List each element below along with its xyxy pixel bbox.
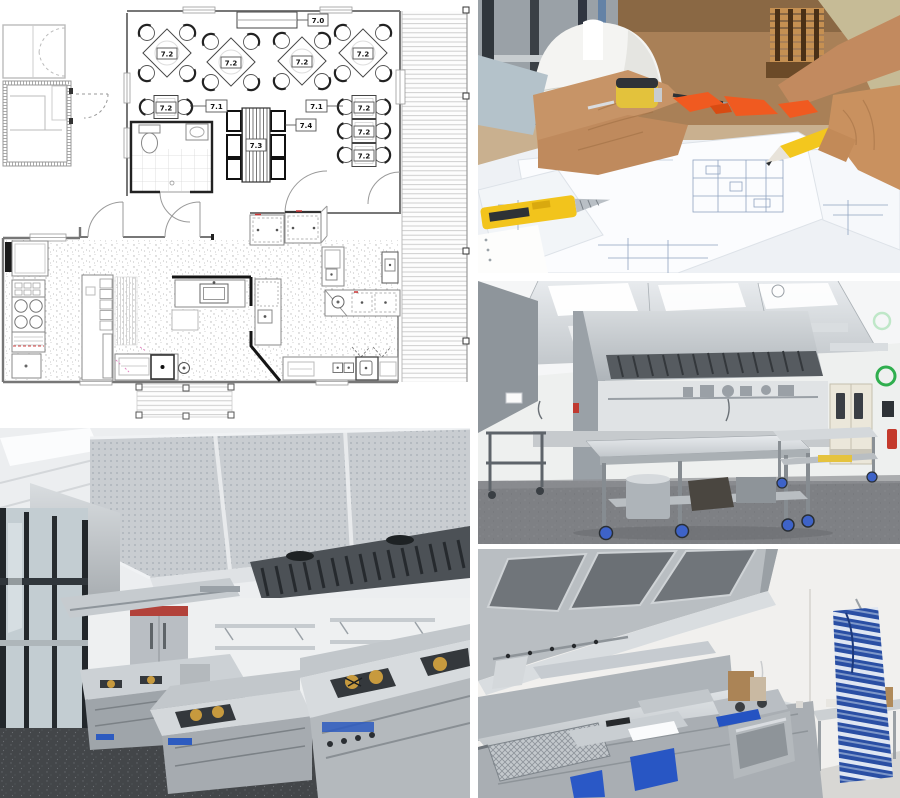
tag-7-2: 7.2: [358, 129, 371, 137]
wall-socket: [796, 701, 803, 708]
tag-7-2: 7.2: [225, 60, 238, 68]
tag-7-2: 7.2: [358, 153, 371, 161]
tag-7-2: 7.2: [296, 59, 309, 67]
storeroom-left: [3, 25, 108, 166]
blueprint-review-photo: [478, 0, 900, 273]
kitchen-fry-line-photo: [478, 549, 900, 798]
tag-7-0: 7.0: [312, 17, 325, 25]
extraction-hood: [583, 311, 823, 381]
photo-collage: 7.0 7.1 7.1 7.4 7.3 7.2 7.2 7.2 7.2 7.2 …: [0, 0, 900, 798]
tag-7-2: 7.2: [161, 51, 174, 59]
floor-plan-drawing: 7.0 7.1 7.1 7.4 7.3 7.2 7.2 7.2 7.2 7.2 …: [0, 0, 470, 426]
tag-7-2: 7.2: [160, 105, 173, 113]
cook-bench-mid: [150, 670, 312, 794]
tag-7-1-right: 7.1: [310, 103, 323, 111]
glass-partition: [0, 508, 88, 753]
kitchen-gas-line-photo: [0, 428, 470, 798]
porch-steps: [136, 384, 234, 419]
kitchen-island-photo: [478, 281, 900, 544]
tag-7-1-left: 7.1: [210, 103, 223, 111]
cream-door: [830, 384, 872, 464]
tag-7-4: 7.4: [300, 122, 313, 130]
tag-7-2: 7.2: [357, 51, 370, 59]
tag-7-3: 7.3: [250, 142, 263, 150]
tag-7-2: 7.2: [358, 105, 371, 113]
deck-boards: [402, 7, 469, 382]
bathroom: [131, 122, 212, 192]
